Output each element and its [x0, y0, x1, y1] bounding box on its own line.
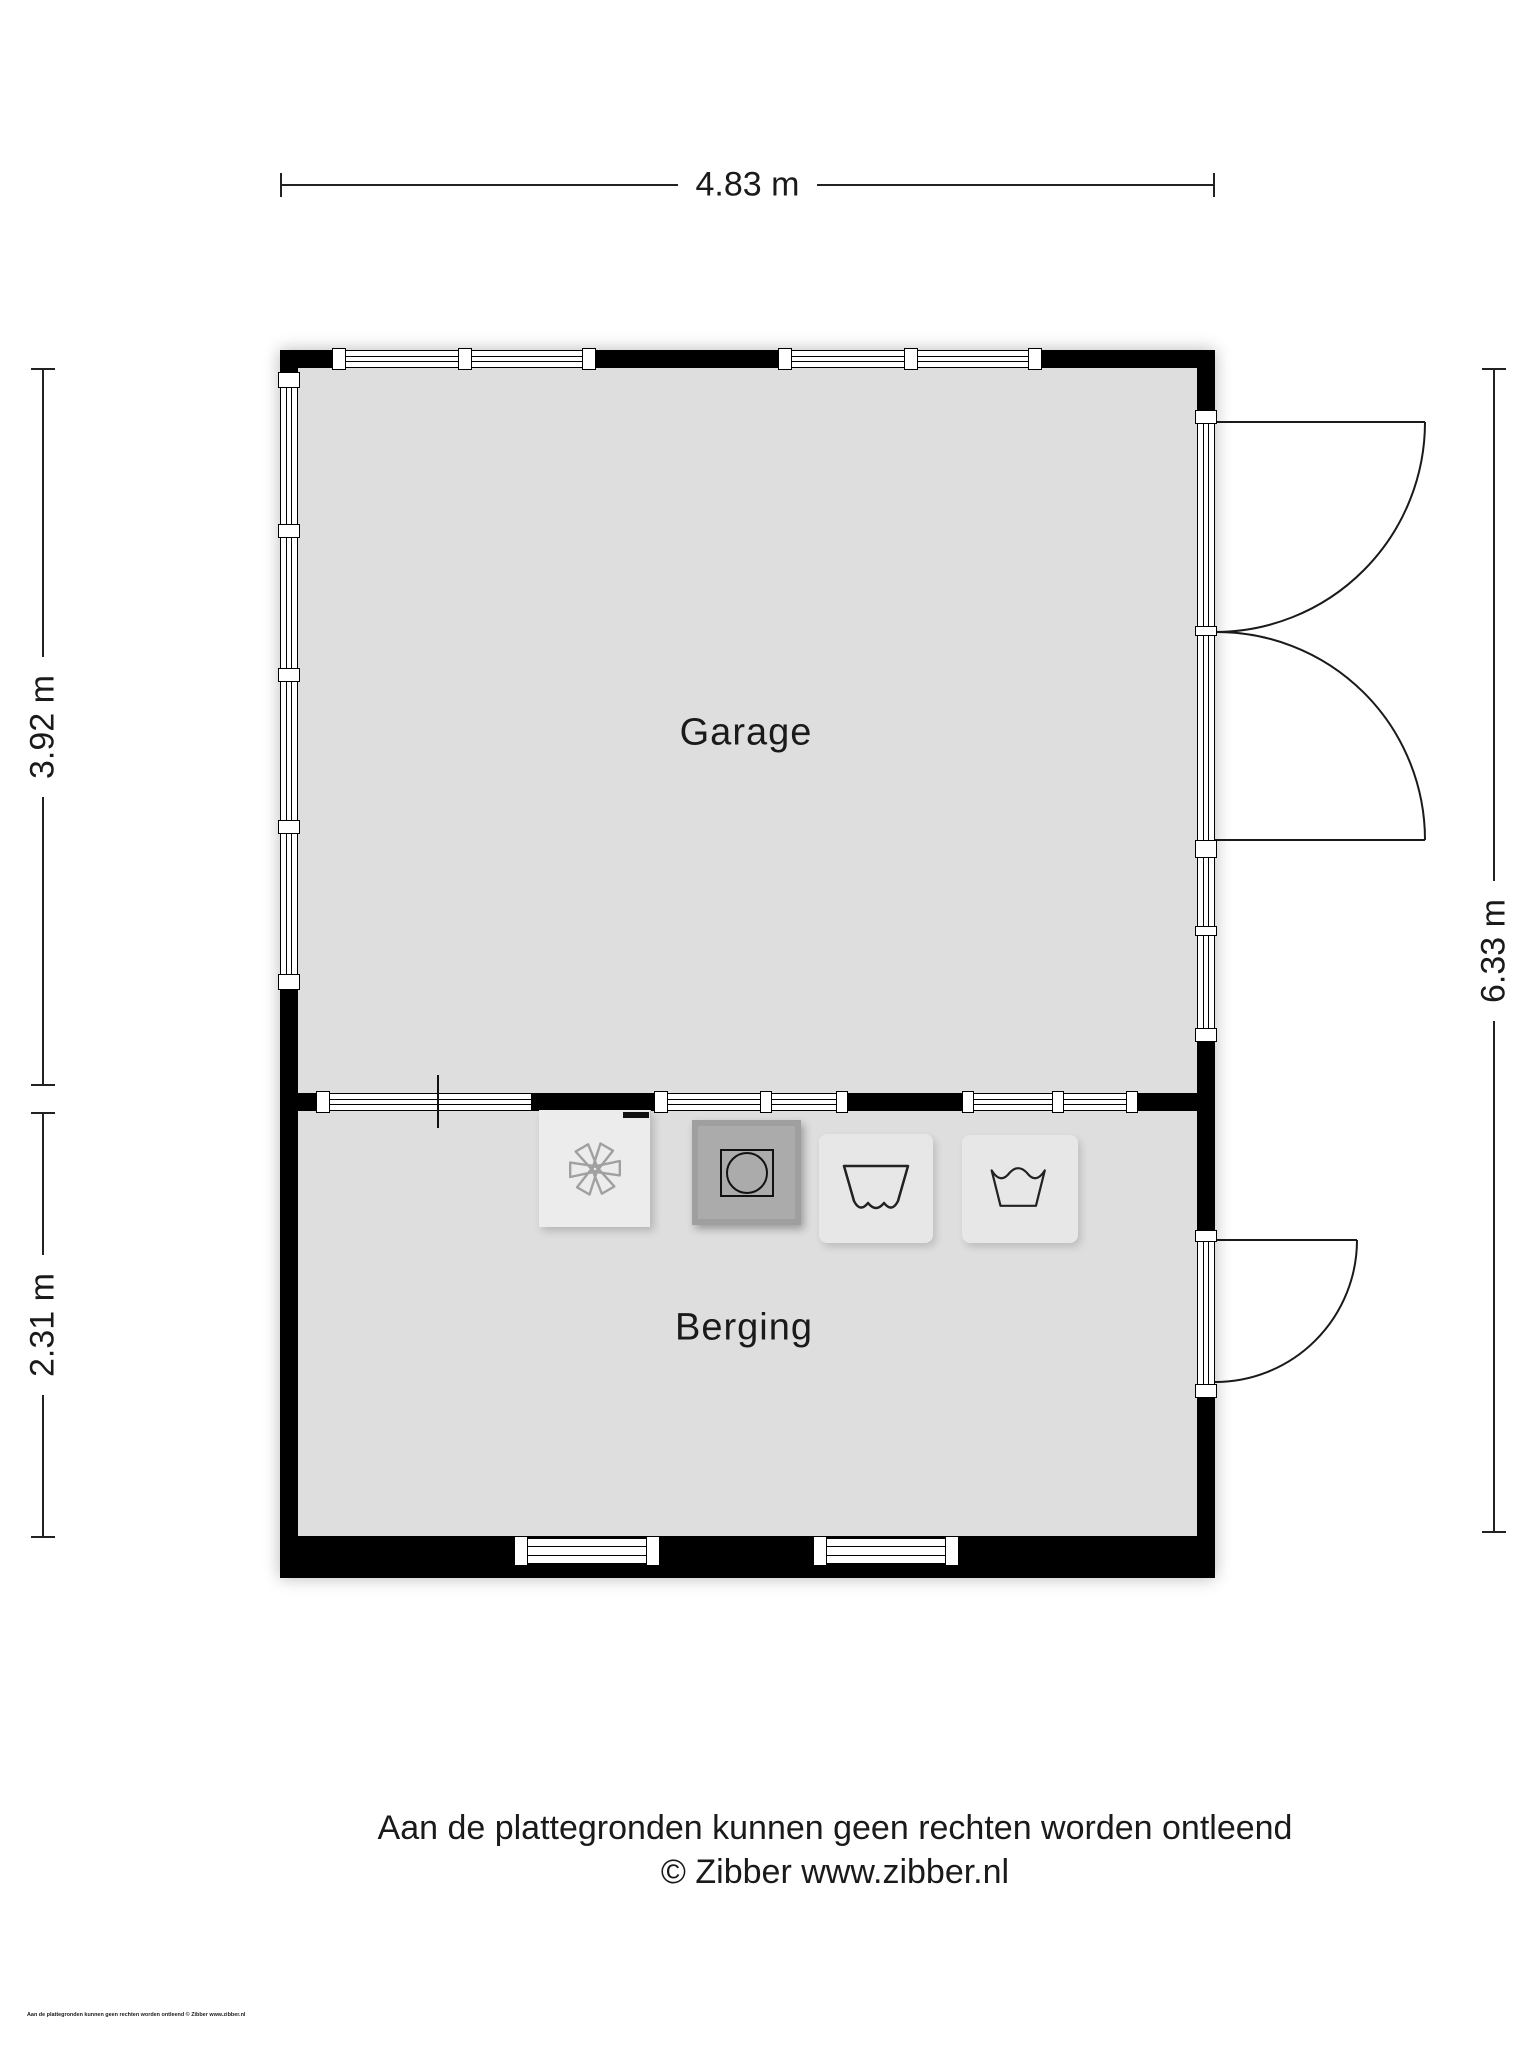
- wall-segment: [280, 988, 298, 1578]
- wall-segment: [1197, 350, 1215, 412]
- window-mullion: [1028, 348, 1042, 370]
- window-pane: [1197, 1240, 1215, 1386]
- window-mullion: [1195, 626, 1217, 636]
- window-mullion: [278, 820, 300, 834]
- window-pane: [1197, 634, 1215, 842]
- window-mullion: [316, 1091, 330, 1113]
- ventilation-unit: [539, 1110, 651, 1227]
- building: Garage Berging: [280, 350, 1215, 1578]
- dimension-left-berging-label: 2.31 m: [22, 1255, 65, 1395]
- small-print-text: Aan de plattegronden kunnen geen rechten…: [27, 2011, 245, 2017]
- window-mullion: [962, 1091, 974, 1113]
- disclaimer-text: Aan de plattegronden kunnen geen rechten…: [135, 1806, 1535, 1850]
- window-pane: [280, 832, 298, 976]
- wall-segment: [530, 1093, 656, 1111]
- dimension-tick: [31, 368, 55, 370]
- window-pane: [1197, 934, 1215, 1030]
- window-mullion: [1195, 1028, 1217, 1042]
- window-mullion: [278, 668, 300, 682]
- window-pane: [344, 350, 460, 368]
- room-label-garage: Garage: [680, 712, 813, 755]
- window-mullion: [778, 348, 792, 370]
- wall-segment: [846, 1093, 964, 1111]
- garage-double-door-swing: [1213, 413, 1429, 849]
- washing-machine-icon: [716, 1145, 778, 1201]
- dimension-tick: [280, 173, 282, 197]
- footer: Aan de plattegronden kunnen geen rechten…: [135, 1806, 1535, 1894]
- window-pane: [1062, 1093, 1128, 1111]
- vent-slot: [623, 1112, 649, 1118]
- window-mullion: [278, 372, 300, 388]
- dimension-tick: [1482, 1531, 1506, 1533]
- dimension-right-total-label: 6.33 m: [1473, 881, 1516, 1021]
- window-mullion: [945, 1536, 959, 1566]
- window-pane: [972, 1093, 1054, 1111]
- window-pane: [666, 1093, 762, 1111]
- window-mullion: [813, 1536, 827, 1566]
- dimension-top-label: 4.83 m: [678, 164, 818, 207]
- window-pane: [280, 386, 298, 526]
- window-mullion: [1126, 1091, 1138, 1113]
- wall-segment: [1040, 350, 1215, 368]
- laundry-dry-symbol-icon: [836, 1154, 916, 1224]
- window-mullion: [458, 348, 472, 370]
- wall-segment: [1197, 1040, 1215, 1232]
- dimension-tick: [31, 1536, 55, 1538]
- fan-icon: [559, 1133, 631, 1205]
- washing-machine-body: [698, 1126, 795, 1219]
- dimension-left-berging: 2.31 m: [31, 1112, 55, 1538]
- dimension-left-garage-label: 3.92 m: [22, 657, 65, 797]
- room-label-berging: Berging: [675, 1307, 813, 1350]
- window-mullion: [904, 348, 918, 370]
- window-mullion: [514, 1536, 528, 1566]
- laundry-tub-unit: [962, 1135, 1078, 1243]
- window-mullion: [646, 1536, 660, 1566]
- floorplan-page: { "floorplan": { "dimensions": { "width_…: [0, 0, 1536, 2048]
- dimension-tick: [1482, 368, 1506, 370]
- wall-segment: [594, 350, 780, 368]
- dimension-tick: [31, 1112, 55, 1114]
- window-mullion: [332, 348, 346, 370]
- window-pane: [470, 350, 584, 368]
- window-pane: [280, 680, 298, 822]
- copyright-text: © Zibber www.zibber.nl: [135, 1850, 1535, 1894]
- window-mullion: [1195, 1230, 1217, 1242]
- laundry-wash-symbol-icon: [984, 1158, 1056, 1220]
- dimension-tick: [1213, 173, 1215, 197]
- window-mullion: [1195, 840, 1217, 858]
- washing-machine: [692, 1120, 801, 1225]
- window-pane: [1197, 422, 1215, 628]
- berging-door-swing: [1213, 1236, 1365, 1390]
- window-pane: [1197, 856, 1215, 928]
- window-mullion: [582, 348, 596, 370]
- window-pane: [790, 350, 906, 368]
- window-pane: [825, 1538, 947, 1564]
- window-mullion: [836, 1091, 848, 1113]
- wall-segment: [280, 350, 298, 374]
- window-pane: [770, 1093, 838, 1111]
- window-mullion: [1195, 410, 1217, 424]
- window-mullion: [760, 1091, 772, 1113]
- wall-segment: [1136, 1093, 1215, 1111]
- dimension-right-total: 6.33 m: [1482, 368, 1506, 1533]
- dimension-left-garage: 3.92 m: [31, 368, 55, 1086]
- wall-marker-line: [437, 1075, 439, 1128]
- dimension-top: 4.83 m: [280, 173, 1215, 197]
- dryer-unit: [819, 1134, 933, 1243]
- window-mullion: [1195, 926, 1217, 936]
- window-pane: [916, 350, 1030, 368]
- window-mullion: [278, 974, 300, 990]
- dimension-tick: [31, 1084, 55, 1086]
- window-mullion: [1052, 1091, 1064, 1113]
- window-pane: [280, 536, 298, 670]
- wall-segment: [280, 1093, 318, 1111]
- window-mullion: [1195, 1384, 1217, 1398]
- window-pane: [328, 1093, 532, 1111]
- wall-segment: [280, 1536, 1215, 1578]
- window-pane: [526, 1538, 648, 1564]
- window-mullion: [654, 1091, 668, 1113]
- window-mullion: [278, 524, 300, 538]
